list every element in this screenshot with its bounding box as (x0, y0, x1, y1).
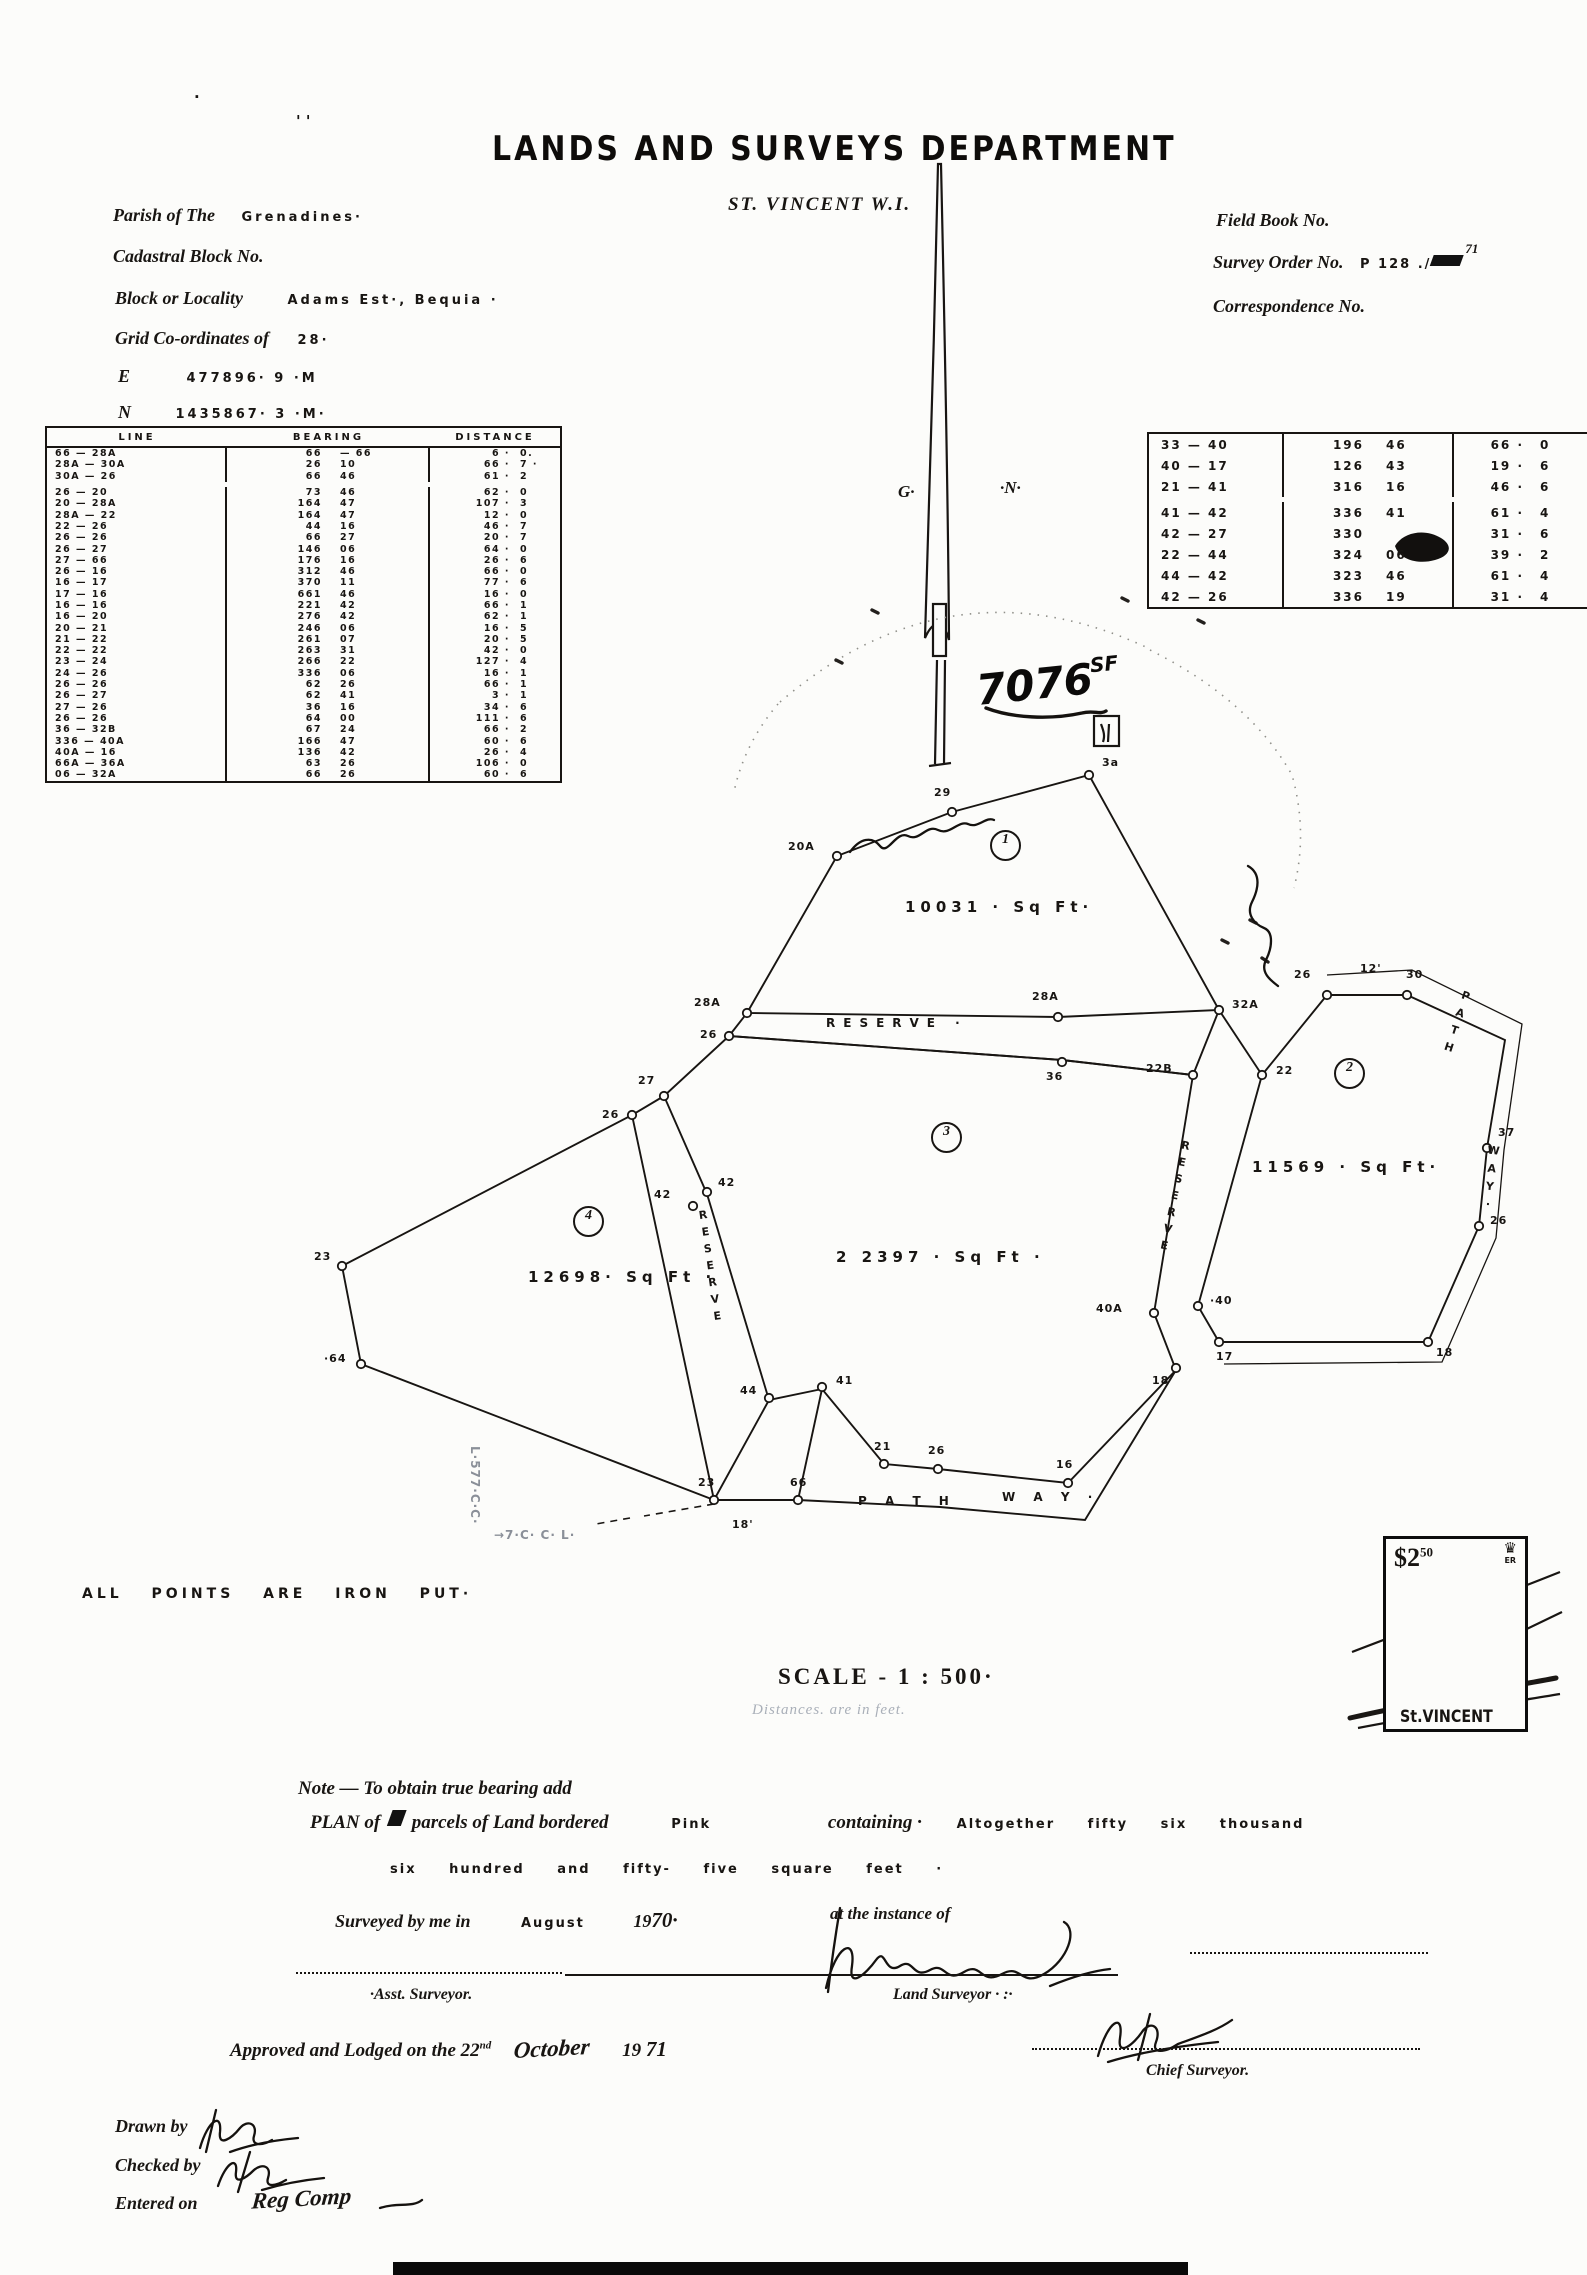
table-cell: 22 — 44 (1149, 544, 1284, 565)
table-cell: 266 (227, 656, 322, 667)
revenue-stamp: $250 ♛ER St.VINCENT (1383, 1536, 1528, 1732)
pathway-label: W A Y · (1002, 1490, 1099, 1504)
table-cell: 46 (1364, 565, 1454, 586)
survey-order-value: P 128 ./ (1360, 257, 1431, 272)
table-row: 06 — 32A662660 ·6 (47, 769, 560, 780)
table-row: 66A — 36A6326106 ·0 (47, 758, 560, 769)
table-cell: 26 · (430, 747, 510, 758)
table-cell: 46 · (430, 521, 510, 532)
handwritten-area-note: 7076 (974, 654, 1095, 715)
table-row: 28A — 30A261066 ·7 · (47, 459, 560, 470)
table-cell: 06 — 32A (47, 769, 227, 780)
table-cell: 31 · (1454, 527, 1524, 541)
table-cell: 36 — 32B (47, 724, 227, 735)
table-cell: 42 — 27 (1149, 523, 1284, 544)
table-cell: 0 (510, 589, 560, 600)
grid-label: Grid Co-ordinates of (115, 328, 269, 348)
table-cell: 276 (227, 611, 322, 622)
table-cell: 42 (322, 747, 430, 758)
point-label: 66 (790, 1476, 807, 1489)
table-cell: 2 (1524, 548, 1587, 562)
grid-north-label: G· (898, 482, 915, 502)
table-cell: 44 (227, 521, 322, 532)
point-label: 32A (1232, 998, 1259, 1011)
table-cell: 336 — 40A (47, 735, 227, 746)
point-label: 26 (928, 1444, 945, 1457)
approved-year: 19 (622, 2040, 641, 2061)
plan-description-line: PLAN of parcels of Land bordered Pink co… (310, 1812, 1304, 1834)
table-cell: 19 · (1454, 459, 1524, 473)
table-cell: 16 (322, 521, 430, 532)
table-cell: 1 (510, 690, 560, 701)
parcel-number: 2 (1334, 1058, 1365, 1089)
asst-surveyor-label: ·Asst. Surveyor. (370, 1986, 472, 2004)
instance-label: at the instance of (830, 1904, 950, 1924)
table-cell: 6 (1524, 527, 1587, 541)
parcel-number: 4 (573, 1206, 604, 1237)
table-cell: 66 (227, 769, 322, 780)
stamp-price-dollars: $2 (1394, 1543, 1420, 1572)
table-row: 28A — 221644712 ·0 (47, 509, 560, 520)
table-cell: 47 (322, 509, 430, 520)
surveyed-year: 19 (633, 1911, 651, 1931)
table-cell: 26 — 26 (47, 679, 227, 690)
stamp-price-cents: 50 (1420, 1544, 1433, 1559)
table-cell: 6 (510, 713, 560, 724)
grid-value: 28· (298, 333, 330, 348)
table-cell: 261 (227, 634, 322, 645)
table-cell: 28A — 30A (47, 459, 227, 470)
table-cell: 20 — 28A (47, 498, 227, 509)
table-row: 24 — 263360616 ·1 (47, 668, 560, 679)
parish-label: Parish of The (113, 205, 215, 225)
point-label: 26 (1294, 968, 1311, 981)
table-cell: 16 (322, 555, 430, 566)
table-cell: 26 · (430, 555, 510, 566)
table-cell: 66 · (430, 566, 510, 577)
table-cell: 166 (227, 736, 322, 747)
table-cell: 146 (227, 544, 322, 555)
table-row: 336 — 40A1664760 ·6 (47, 735, 560, 746)
point-label: 23 (698, 1476, 715, 1489)
page-subtitle: ST. VINCENT W.I. (728, 194, 911, 216)
table-cell: 107 · (430, 498, 510, 509)
table-cell: 6 · (430, 448, 510, 459)
table-cell (1364, 523, 1454, 544)
table-cell: 661 (227, 589, 322, 600)
table-cell: 66 · (430, 600, 510, 611)
northing-value: 1435867· 3 ·M· (176, 407, 327, 422)
table-cell: 61 · (1454, 569, 1524, 583)
ink-blot (1430, 255, 1464, 266)
table-cell: 26 (322, 679, 430, 690)
table-cell: 126 (1284, 459, 1364, 473)
table-cell: 21 — 41 (1149, 476, 1284, 497)
parish-line: Parish of The Grenadines· (113, 205, 363, 226)
table-row: 20 — 212460616 ·5 (47, 622, 560, 633)
table-row: 21 — 413161646 ·6 (1149, 476, 1587, 497)
margin-annotation: →7·C· C· L· (494, 1528, 575, 1542)
table-cell: 324 (1284, 548, 1364, 562)
asst-surveyor-signature-line (296, 1972, 562, 1974)
table-row: 44 — 423234661 ·4 (1149, 565, 1587, 586)
point-label: 3a (1102, 756, 1119, 769)
parcel-number: 1 (990, 830, 1021, 861)
table-cell: 0. (510, 448, 560, 459)
stamp-price: $250 (1394, 1543, 1433, 1573)
table-cell: 66 — 28A (47, 448, 227, 459)
table-cell: 31 · (1454, 590, 1524, 604)
table-cell: 27 — 66 (47, 555, 227, 566)
table-cell: 31 (322, 645, 430, 656)
point-label: 40A (1096, 1302, 1123, 1315)
table-cell: 4 (510, 656, 560, 667)
table-cell: 60 · (430, 736, 510, 747)
table-cell: 16 — 17 (47, 577, 227, 588)
table-cell: 23 — 24 (47, 656, 227, 667)
table-cell: 26 (322, 758, 430, 769)
table-body: 33 — 401964666 ·040 — 171264319 ·621 — 4… (1149, 434, 1587, 607)
table-cell: 66 · (430, 459, 510, 470)
table-cell: 370 (227, 577, 322, 588)
point-label: 37 (1498, 1126, 1515, 1139)
scan-mark: ' ' (296, 112, 310, 130)
point-label: ·64 (324, 1352, 347, 1365)
table-cell: 39 · (1454, 548, 1524, 562)
point-label: 22B (1146, 1062, 1173, 1075)
table-cell: 24 — 26 (47, 668, 227, 679)
point-label: 12' (1360, 962, 1382, 975)
plan-amount-2: six hundred and fifty- five square feet … (390, 1862, 943, 1877)
table-row: 22 — 222633142 ·0 (47, 645, 560, 656)
table-cell: 196 (1284, 438, 1364, 452)
table-cell: 26 — 16 (47, 566, 227, 577)
table-cell: 46 (322, 471, 430, 482)
point-label: 26 (602, 1108, 619, 1121)
table-cell: 22 — 22 (47, 645, 227, 656)
survey-order-year: 71 (1465, 241, 1478, 256)
parcel-area-label: 11569 · Sq Ft· (1252, 1158, 1440, 1176)
table-cell: 33 — 40 (1149, 434, 1284, 455)
handwritten-area-note: SF (1089, 651, 1119, 678)
table-cell: 312 (227, 566, 322, 577)
table-cell: 26 — 27 (47, 543, 227, 554)
parcel-area-label: 12698· Sq Ft · (528, 1268, 716, 1286)
locality-value: Adams Est·, Bequia · (287, 293, 498, 308)
table-cell: 62 · (430, 611, 510, 622)
table-cell: 62 (227, 679, 322, 690)
table-cell: 64 · (430, 544, 510, 555)
locality-label: Block or Locality (115, 288, 243, 308)
distances-note: Distances. are in feet. (752, 1702, 906, 1719)
plan-of-label: PLAN of (310, 1812, 380, 1833)
table-row: 22 — 443240639 ·2 (1149, 544, 1587, 565)
table-row: 40 — 171264319 ·6 (1149, 455, 1587, 476)
crown-glyph: ♛ (1504, 1541, 1517, 1557)
point-label: 30 (1406, 968, 1423, 981)
parcel-area-label: 10031 · Sq Ft· (905, 898, 1093, 916)
surveyed-line: Surveyed by me in August 1970· (335, 1908, 678, 1933)
point-label: 21 (874, 1440, 891, 1453)
approved-line: Approved and Lodged on the 22nd October … (230, 2036, 667, 2062)
table-cell: 16 — 20 (47, 611, 227, 622)
table-cell: 106 · (430, 758, 510, 769)
table-cell: 46 (322, 487, 430, 498)
table-cell: 11 (322, 577, 430, 588)
table-row: 23 — 2426622127 ·4 (47, 656, 560, 667)
table-row: 42 — 2733031 ·6 (1149, 523, 1587, 544)
table-cell: 41 — 42 (1149, 502, 1284, 523)
side-bearing-table: 33 — 401964666 ·040 — 171264319 ·621 — 4… (1147, 432, 1587, 609)
table-cell: 4 (510, 747, 560, 758)
table-body: 66 — 28A66— 666 ·0.28A — 30A261066 ·7 ·3… (47, 448, 560, 781)
table-row: 17 — 166614616 ·0 (47, 589, 560, 600)
locality-line: Block or Locality Adams Est·, Bequia · (115, 288, 499, 309)
table-cell: 164 (227, 498, 322, 509)
chief-surveyor-signature-line (1032, 2048, 1420, 2050)
table-cell: 1 (510, 679, 560, 690)
point-label: 20A (788, 840, 815, 853)
table-cell: 0 (510, 645, 560, 656)
point-label: ·40 (1210, 1294, 1233, 1307)
drawn-by-label: Drawn by (115, 2116, 188, 2137)
table-cell: 26 — 26 (47, 532, 227, 543)
plan-amount-1: Altogether fifty six thousand (957, 1817, 1305, 1832)
point-label: 16 (1056, 1458, 1073, 1471)
col-bearing: BEARING (227, 432, 430, 443)
table-cell: 0 (510, 566, 560, 577)
table-cell: 26 — 20 (47, 487, 227, 498)
table-cell: 336 (227, 668, 322, 679)
point-label: 17 (1216, 1350, 1233, 1363)
surveyed-month: August (521, 1916, 585, 1931)
survey-plan-document: 20A293a32A22B28A3628A2627264242444123·64… (0, 0, 1587, 2275)
scan-mark: · (194, 88, 200, 106)
table-cell: 176 (227, 555, 322, 566)
table-cell: 6 (1524, 459, 1587, 473)
table-cell: 336 (1284, 506, 1364, 520)
table-row: 22 — 26441646 ·7 (47, 521, 560, 532)
point-label: 26 (700, 1028, 717, 1041)
table-cell: 26 (227, 459, 322, 470)
cadastral-line: Cadastral Block No. (113, 246, 264, 267)
table-cell: 4 (1524, 506, 1587, 520)
table-cell: 6 (510, 577, 560, 588)
table-cell: 2 (510, 471, 560, 482)
point-label: 18 (1152, 1374, 1169, 1387)
table-cell: 46 · (1454, 480, 1524, 494)
plan-pink-value: Pink (671, 1817, 711, 1832)
table-row: 16 — 173701177 ·6 (47, 577, 560, 588)
point-label: 42 (654, 1188, 671, 1201)
table-cell: 30A — 26 (47, 471, 227, 482)
table-row: 42 — 263361931 ·4 (1149, 586, 1587, 607)
table-cell: 22 — 26 (47, 521, 227, 532)
table-cell: 0 (510, 510, 560, 521)
land-surveyor-label: Land Surveyor · :· (893, 1986, 1013, 2004)
table-cell: 66 · (430, 724, 510, 735)
point-label: 42 (718, 1176, 735, 1189)
table-cell: 6 (510, 555, 560, 566)
table-cell: 7 (510, 532, 560, 543)
table-cell: 66 · (1454, 438, 1524, 452)
table-row: 36 — 32B672466 ·2 (47, 724, 560, 735)
right-signature-line (1190, 1952, 1428, 1954)
point-label: 29 (934, 786, 951, 799)
table-cell: 66 (227, 532, 322, 543)
point-label: 23 (314, 1250, 331, 1263)
bearing-note: Note — To obtain true bearing add (298, 1778, 572, 1800)
table-row: 26 — 26662720 ·7 (47, 532, 560, 543)
table-row: 66 — 28A66— 666 ·0. (47, 448, 560, 459)
table-row: 33 — 401964666 ·0 (1149, 434, 1587, 455)
point-label: 28A (694, 996, 721, 1009)
table-cell: 07 (322, 634, 430, 645)
table-cell: 12 · (430, 510, 510, 521)
table-cell: 62 (227, 690, 322, 701)
table-cell: 0 (510, 487, 560, 498)
table-cell: 41 (322, 690, 430, 701)
table-cell: 1 (510, 600, 560, 611)
easting-value: 477896· 9 ·M (187, 371, 318, 386)
table-cell: 26 (322, 769, 430, 780)
col-line: LINE (47, 432, 227, 443)
table-cell: 62 · (430, 487, 510, 498)
table-cell: 316 (1284, 480, 1364, 494)
table-cell: 16 (1364, 476, 1454, 497)
table-cell: 41 (1364, 502, 1454, 523)
point-label: 18' (732, 1518, 754, 1531)
table-cell: 66 (227, 471, 322, 482)
table-cell: 20 · (430, 634, 510, 645)
table-cell: 323 (1284, 569, 1364, 583)
table-cell: 06 (1364, 544, 1454, 565)
table-cell: 42 — 26 (1149, 586, 1284, 607)
table-row: 21 — 222610720 ·5 (47, 634, 560, 645)
table-cell: 46 (322, 589, 430, 600)
table-cell: 4 (1524, 590, 1587, 604)
table-cell: 3 (510, 498, 560, 509)
table-cell: 64 (227, 713, 322, 724)
table-cell: 17 — 16 (47, 589, 227, 600)
parcel-area-label: 2 2397 · Sq Ft · (836, 1248, 1045, 1266)
point-label: 44 (740, 1384, 757, 1397)
table-cell: 47 (322, 498, 430, 509)
table-cell: 0 (510, 758, 560, 769)
table-cell: 60 · (430, 769, 510, 780)
pathway-label: PATH (1439, 988, 1474, 1060)
col-distance: DISTANCE (430, 432, 560, 443)
reserve-label: RESERVE (1156, 1138, 1193, 1257)
table-cell: 61 · (430, 471, 510, 482)
table-cell: 7 (510, 521, 560, 532)
point-label: 22 (1276, 1064, 1293, 1077)
easting-label: E (118, 366, 130, 386)
plan-parcels-label: parcels of Land bordered (412, 1812, 609, 1833)
table-row: 26 — 26622666 ·1 (47, 679, 560, 690)
table-row: 16 — 202764262 ·1 (47, 611, 560, 622)
table-row: 30A — 26664661 ·2 (47, 471, 560, 482)
table-cell: 127 · (430, 656, 510, 667)
table-cell: 1 (510, 668, 560, 679)
table-cell: 16 (322, 702, 430, 713)
table-cell: 27 (322, 532, 430, 543)
northing-line: N 1435867· 3 ·M· (118, 402, 327, 423)
approved-ordinal: nd (480, 2040, 492, 2052)
table-cell: 0 (1524, 438, 1587, 452)
table-cell: 7 · (510, 459, 560, 470)
checked-by-label: Checked by (115, 2155, 200, 2176)
table-row: 16 — 162214266 ·1 (47, 600, 560, 611)
easting-line: E 477896· 9 ·M (118, 366, 318, 387)
table-cell: 43 (1364, 455, 1454, 476)
table-cell: 42 (322, 600, 430, 611)
entered-on-label: Entered on (115, 2193, 198, 2214)
table-cell: 26 — 27 (47, 690, 227, 701)
table-cell: 46 (322, 566, 430, 577)
table-cell: 6 (510, 736, 560, 747)
point-label: 18 (1436, 1346, 1453, 1359)
point-label: 41 (836, 1374, 853, 1387)
table-header: LINE BEARING DISTANCE (47, 428, 560, 448)
table-cell: 20 — 21 (47, 622, 227, 633)
table-cell: 06 (322, 622, 430, 633)
surveyed-year-hand: 70· (651, 1908, 677, 1932)
all-points-note: ALL POINTS ARE IRON PUT· (82, 1586, 472, 1602)
table-cell: 22 (322, 656, 430, 667)
table-cell: 6 (1524, 480, 1587, 494)
table-cell: 111 · (430, 713, 510, 724)
parcel-number: 3 (931, 1122, 962, 1153)
approved-month-hand: October (513, 2034, 591, 2064)
table-row: 27 — 661761626 ·6 (47, 555, 560, 566)
table-cell: 24 (322, 724, 430, 735)
table-cell: 66 · (430, 679, 510, 690)
table-cell: 67 (227, 724, 322, 735)
margin-annotation: L·577·C·C· (468, 1446, 482, 1525)
table-row: 40A — 161364226 ·4 (47, 747, 560, 758)
table-cell: 330 (1284, 527, 1364, 541)
table-cell: 2 (510, 724, 560, 735)
table-cell: 63 (227, 758, 322, 769)
parish-value: Grenadines· (242, 210, 363, 225)
table-cell: 42 (322, 611, 430, 622)
point-label: 27 (638, 1074, 655, 1087)
page-title: LANDS AND SURVEYS DEPARTMENT (492, 130, 1177, 169)
table-cell: 46 (1364, 434, 1454, 455)
entered-on-value-hand: Reg Comp (251, 2183, 353, 2214)
point-label: 36 (1046, 1070, 1063, 1083)
table-cell: 28A — 22 (47, 509, 227, 520)
scale-label: SCALE - 1 : 500· (778, 1664, 995, 1690)
field-book-line: Field Book No. (1216, 210, 1330, 231)
table-cell: 3 · (430, 690, 510, 701)
bearing-distance-table: LINE BEARING DISTANCE 66 — 28A66— 666 ·0… (45, 426, 562, 783)
table-cell: 61 · (1454, 506, 1524, 520)
table-cell: 4 (1524, 569, 1587, 583)
table-cell: 164 (227, 510, 322, 521)
pathway-label: WAY· (1480, 1144, 1500, 1217)
table-cell: — 66 (322, 448, 430, 459)
table-cell: 27 — 26 (47, 702, 227, 713)
table-cell: 42 · (430, 645, 510, 656)
table-row: 20 — 28A16447107 ·3 (47, 498, 560, 509)
table-cell: 1 (510, 611, 560, 622)
table-cell: 06 (322, 668, 430, 679)
plan-containing-label: containing · (828, 1812, 922, 1833)
table-row: 26 — 271460664 ·0 (47, 543, 560, 554)
table-row: 41 — 423364161 ·4 (1149, 502, 1587, 523)
